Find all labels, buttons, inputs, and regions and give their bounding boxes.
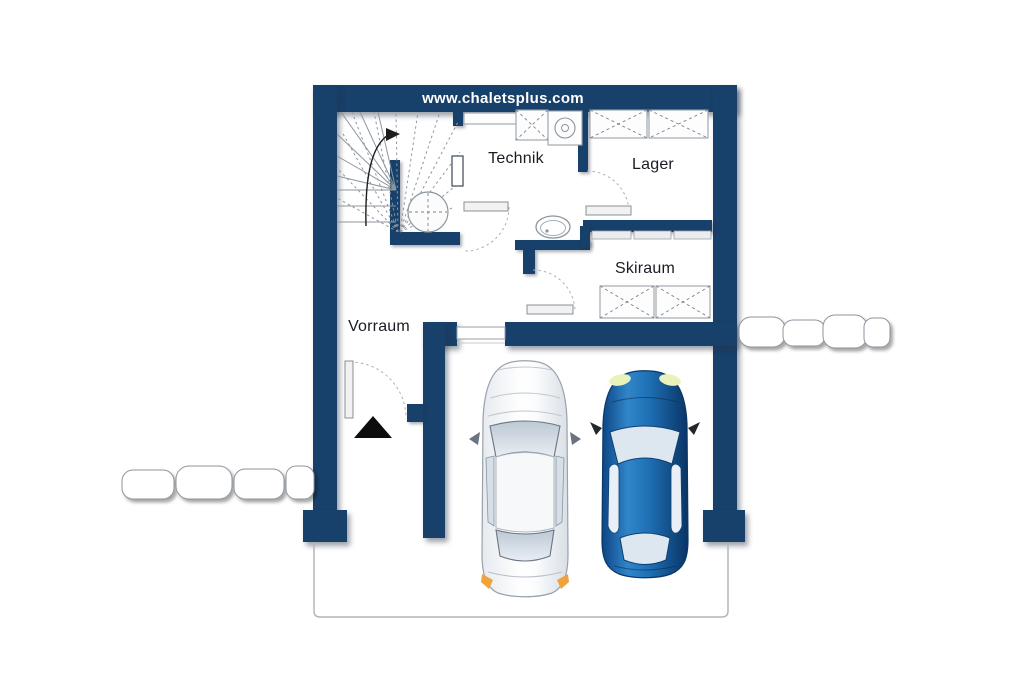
rear-window bbox=[620, 533, 670, 565]
windshield bbox=[490, 421, 560, 457]
stepping-stones-left bbox=[122, 466, 314, 499]
technik-door bbox=[464, 202, 509, 251]
counter bbox=[464, 113, 517, 124]
washing-machine-icon bbox=[548, 111, 582, 145]
appliance-crate-icon bbox=[516, 110, 548, 140]
room-label-technik: Technik bbox=[470, 150, 562, 168]
room-label-skiraum: Skiraum bbox=[599, 260, 691, 278]
entrance-arrow bbox=[354, 416, 392, 438]
entrance-door bbox=[345, 361, 406, 418]
boiler-tank-icon bbox=[408, 192, 448, 232]
threshold-steps bbox=[457, 327, 505, 343]
lager-door bbox=[586, 171, 631, 215]
left-mirror bbox=[590, 422, 602, 435]
skiraum-storage-crates bbox=[600, 286, 710, 318]
stepping-stones-right bbox=[739, 315, 890, 348]
stair-direction-arrow bbox=[386, 128, 400, 141]
floor-plan-canvas: www.chaletsplus.com bbox=[0, 0, 1024, 683]
blue-car bbox=[590, 371, 700, 578]
plan-graphics bbox=[0, 0, 1024, 683]
rear-window bbox=[496, 530, 554, 561]
skiraum-door bbox=[527, 270, 575, 314]
right-mirror bbox=[688, 422, 700, 435]
white-car bbox=[469, 361, 581, 597]
room-label-lager: Lager bbox=[612, 156, 694, 174]
right-mirror bbox=[570, 432, 581, 445]
left-mirror bbox=[469, 432, 480, 445]
lager-storage-crates bbox=[590, 110, 708, 138]
room-label-vorraum: Vorraum bbox=[333, 318, 425, 336]
toilet-icon bbox=[536, 216, 570, 238]
wall-shelves bbox=[592, 231, 711, 239]
radiator-icon bbox=[452, 156, 463, 186]
windshield bbox=[610, 426, 680, 464]
roof bbox=[496, 453, 554, 533]
